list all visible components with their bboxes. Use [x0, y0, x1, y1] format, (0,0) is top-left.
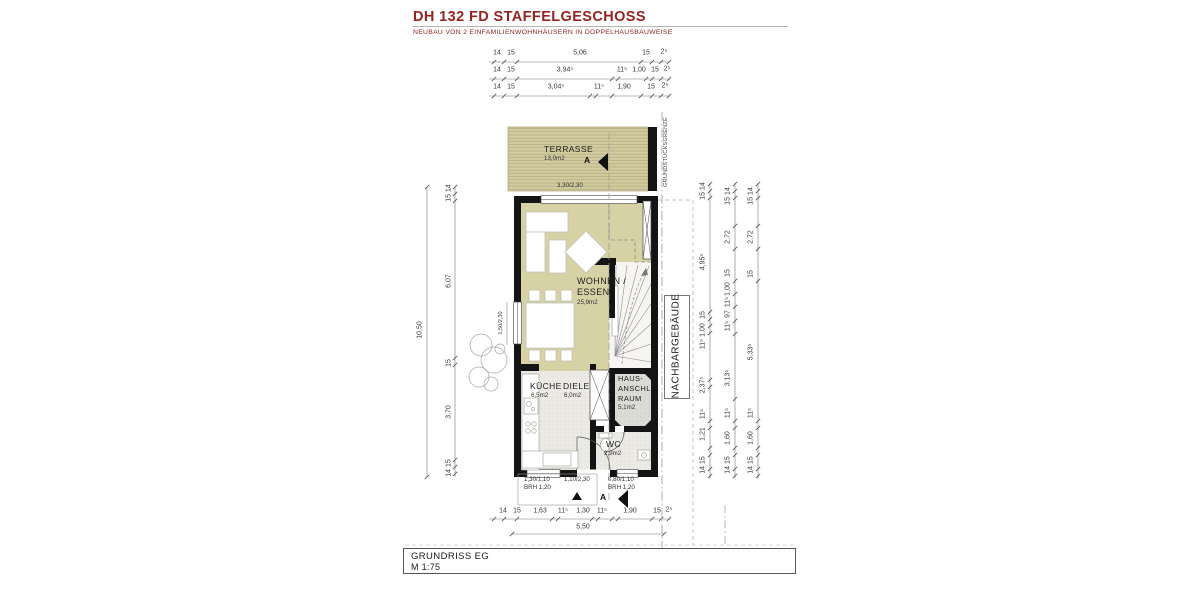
dim-label: 3,04⁵	[548, 84, 565, 91]
dim-label: 4,95⁵	[700, 254, 707, 271]
dim-label: 1,21	[700, 427, 707, 441]
window-size-label: 1,50/2,30	[499, 311, 505, 334]
room-label-har2: ANSCHL.	[618, 385, 653, 393]
room-area-wc: 2,9m2	[604, 451, 621, 457]
dim-label: 14 15	[446, 459, 453, 477]
dim-label: 15	[651, 67, 659, 74]
window1-size: 1,30/1,10	[524, 477, 550, 483]
title-divider	[413, 26, 788, 27]
dim-label: 1,90	[623, 508, 637, 515]
dim-label: 2⁵	[666, 507, 673, 514]
dim-label: 15	[647, 84, 655, 91]
dim-label: 15	[700, 311, 707, 319]
dim-label: 3,70	[446, 405, 453, 419]
dim-label: 15	[507, 50, 515, 57]
dim-label: 1,00	[700, 323, 707, 337]
dim-label: 15	[748, 270, 755, 278]
room-label-har3: RAUM	[618, 395, 642, 403]
room-label-wohnen: WOHNEN /	[577, 277, 626, 286]
dim-total-width: 5,50	[576, 524, 590, 531]
dim-label: 15 14	[446, 184, 453, 202]
dim-label: 14 15	[700, 456, 707, 474]
dim-label: 15	[507, 84, 515, 91]
section-letter-bottom: A	[600, 492, 606, 502]
dim-label: 14 15	[725, 456, 732, 474]
dim-label: 3,13⁵	[725, 370, 732, 387]
neighbor-building-label: NACHBARGEBÄUDE	[671, 294, 682, 399]
room-area-wohnen: 25,9m2	[577, 300, 598, 306]
dim-label: 11⁵	[700, 339, 707, 349]
dim-label: 2,72	[748, 230, 755, 244]
dim-label: 11⁵	[700, 409, 707, 419]
property-line-label: GRUNDSTÜCKSGRENZE	[663, 117, 669, 187]
dim-label: 2,37⁵	[700, 377, 707, 394]
dim-label: 14	[493, 67, 501, 74]
dim-label: 2⁵	[664, 66, 671, 73]
dim-label: 15	[513, 508, 521, 515]
room-label-essen: ESSEN	[577, 288, 610, 297]
door-size-terrace: 3,30/2,30	[557, 183, 583, 189]
dim-label: 14	[493, 84, 501, 91]
dim-label: 15 14	[748, 187, 755, 205]
dim-label: 15	[507, 67, 515, 74]
dim-label: 11⁵	[617, 67, 627, 74]
dim-label: 6,07	[446, 274, 453, 288]
room-area-diele: 6,0m2	[564, 393, 581, 399]
dim-label: 14	[499, 508, 507, 515]
room-area-har: 5,1m2	[618, 405, 635, 411]
dim-label: 1,90	[617, 84, 631, 91]
dim-label: 15	[446, 359, 453, 367]
dim-label: 15	[653, 508, 661, 515]
dim-label: 1,00	[632, 67, 646, 74]
dim-label: 11⁵	[594, 84, 604, 91]
section-arrow-bottom	[618, 490, 628, 508]
dim-label: 14 15	[748, 456, 755, 474]
dim-label: 11⁵	[748, 408, 755, 418]
dim-label: 5,33⁵	[748, 344, 755, 361]
window2-brh: BRH 1,20	[608, 485, 635, 491]
room-area-terrasse: 13,0m2	[544, 156, 565, 162]
window1-brh: BRH 1,20	[524, 485, 551, 491]
dim-label: 11⁵	[725, 408, 732, 418]
entry-door-size: 1,10/2,30	[564, 477, 590, 483]
dim-label: 11⁵	[558, 508, 568, 515]
plant-sketch	[469, 334, 507, 391]
dim-label: 11⁵	[725, 321, 732, 331]
dim-label: 1,30	[576, 508, 590, 515]
dim-label: 2⁵	[662, 83, 669, 90]
dim-label: 1,60	[725, 431, 732, 445]
room-label-kueche: KÜCHE	[530, 382, 562, 391]
dim-label: 5,06	[573, 50, 587, 57]
room-label-diele: DIELE	[563, 382, 590, 391]
page-subtitle: NEUBAU VON 2 EINFAMILIENWOHNHÄUSERN IN D…	[413, 29, 673, 36]
page-title: DH 132 FD STAFFELGESCHOSS	[413, 9, 646, 25]
dim-total-height: 10,50	[417, 321, 424, 339]
window2-size: 0,80/1,10	[608, 477, 634, 483]
dim-label: 97	[725, 310, 732, 318]
dim-label: 15	[642, 50, 650, 57]
dim-label: 15 14	[725, 187, 732, 205]
room-label-terrasse: TERRASSE	[544, 145, 593, 154]
floor-plan-page: { "header": { "title": "DH 132 FD STAFFE…	[0, 0, 1200, 600]
dim-label: 3,94⁵	[557, 67, 574, 74]
dim-label: 1,00	[725, 282, 732, 296]
drawing-scale: M 1:75	[411, 562, 440, 572]
dim-label: 15 14	[700, 182, 707, 200]
dim-label: 1,63	[533, 508, 547, 515]
room-label-har1: HAUS-	[618, 375, 643, 383]
dim-label: 14	[493, 50, 501, 57]
room-label-wc: WC	[606, 440, 621, 449]
drawing-name: GRUNDRISS EG	[411, 551, 489, 562]
dim-label: 2⁵	[661, 49, 668, 56]
dim-label: 2,72	[725, 230, 732, 244]
dim-label: 15	[725, 269, 732, 277]
dim-label: 11⁵	[725, 297, 732, 307]
dim-label: 1,60	[748, 431, 755, 445]
room-area-kueche: 6,5m2	[531, 393, 548, 399]
section-letter-top: A	[584, 155, 590, 165]
entrance-arrow	[572, 492, 582, 500]
dim-label: 11⁵	[597, 508, 607, 515]
